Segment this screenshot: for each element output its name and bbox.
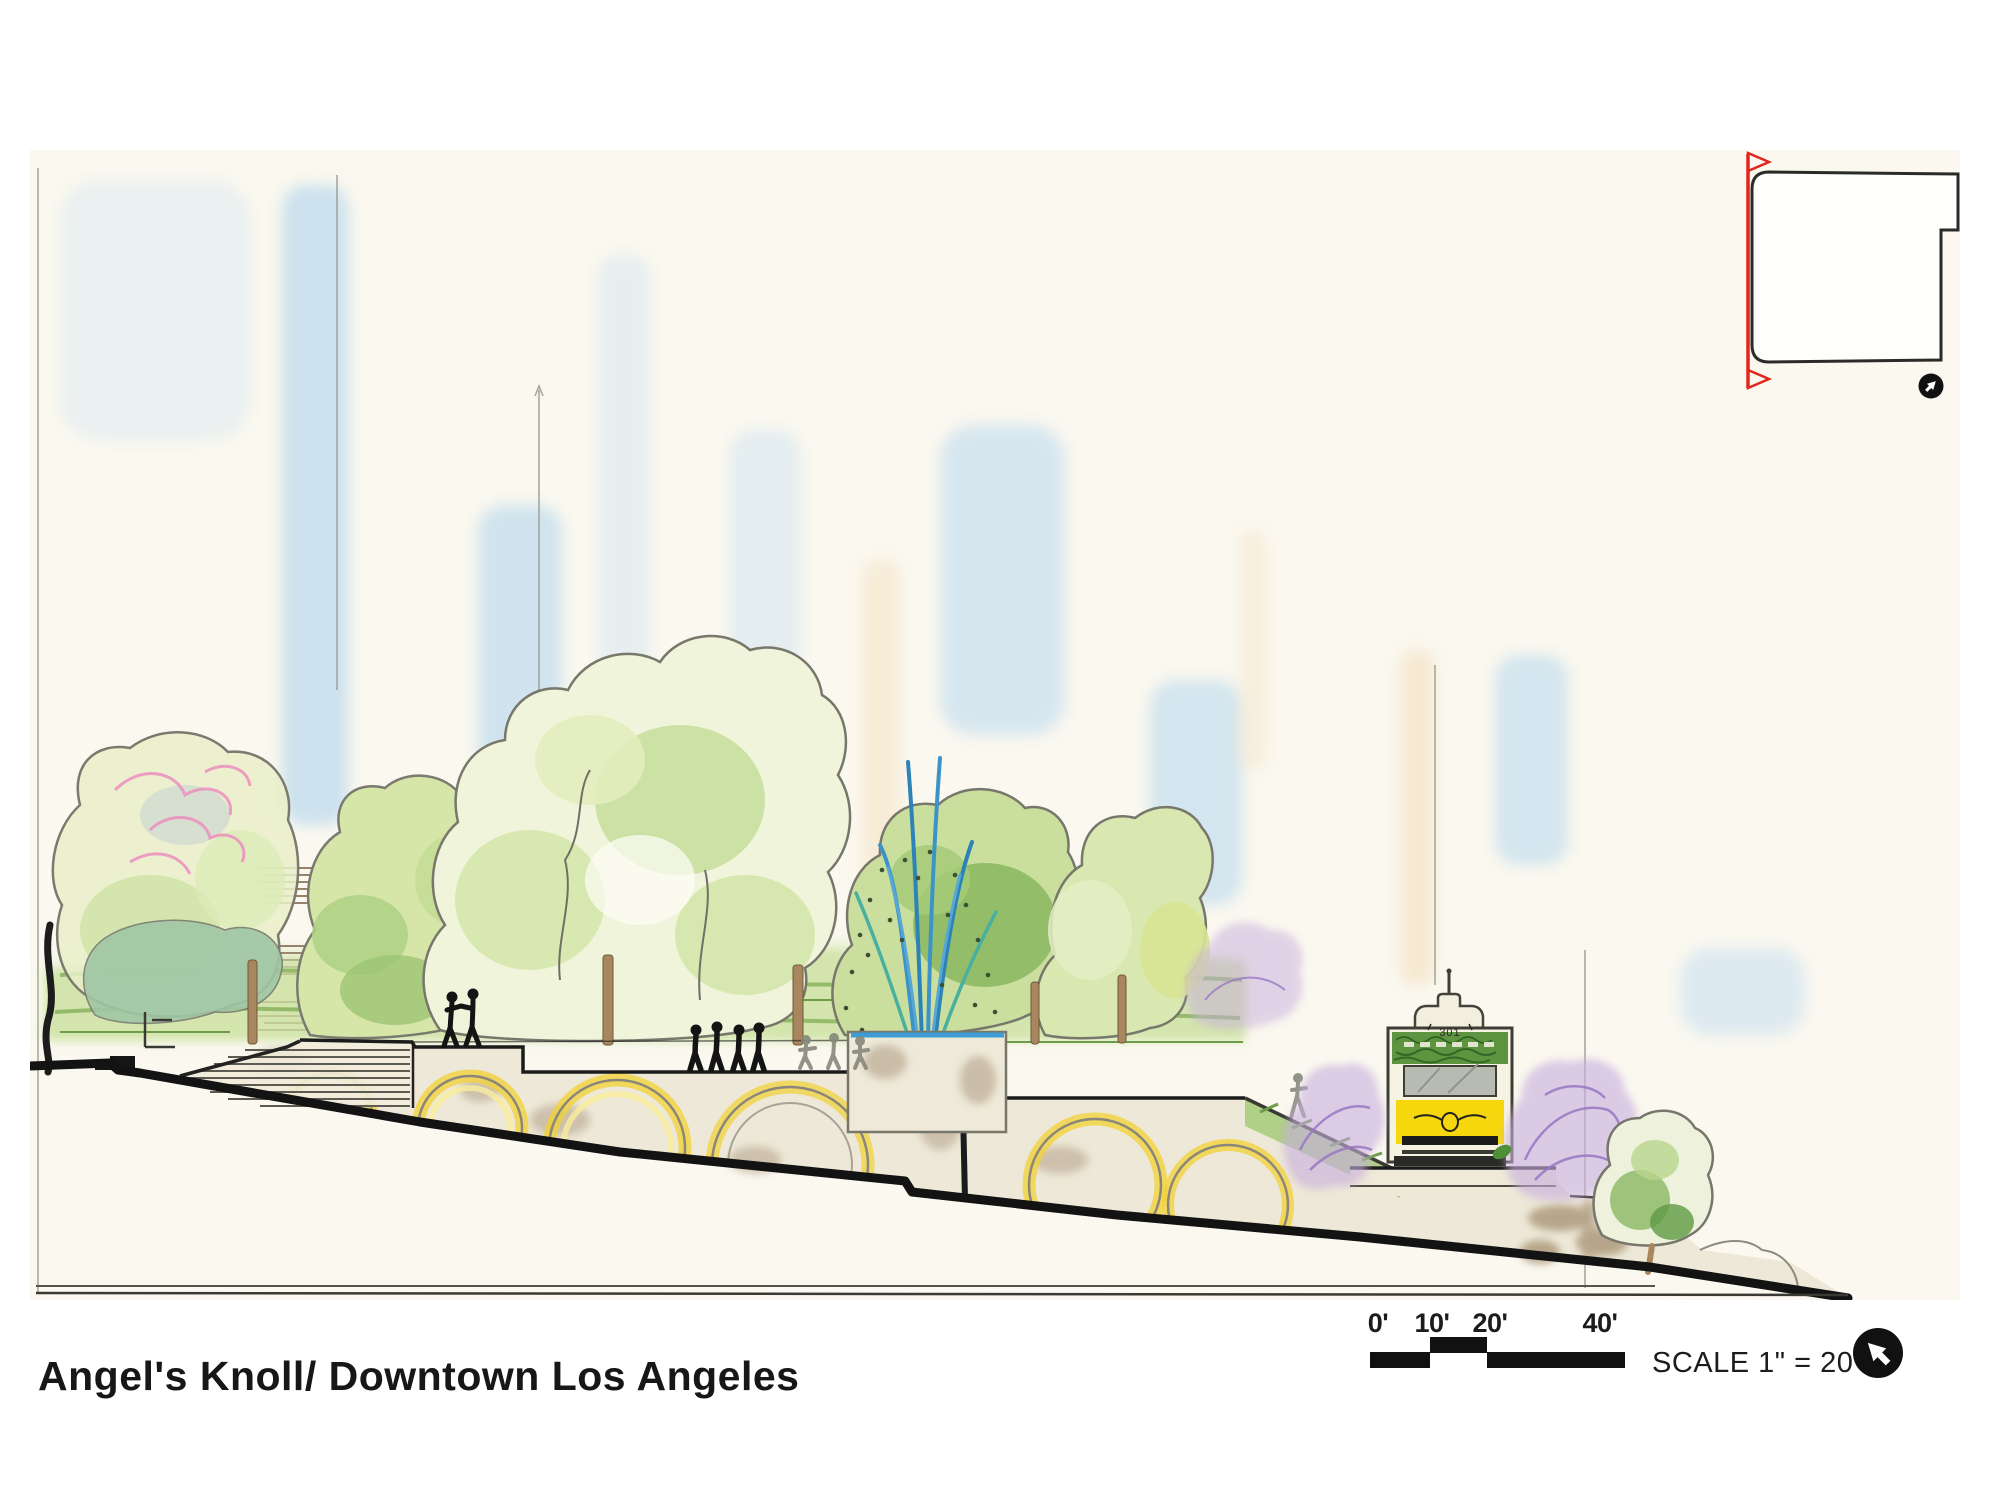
scale-segment bbox=[1430, 1337, 1487, 1353]
scale-label: 40' bbox=[1583, 1308, 1618, 1338]
scale-bar: 0' 10' 20' 40' SCALE 1" = 20'-0" bbox=[1368, 1308, 1903, 1379]
page: 301 bbox=[0, 0, 2000, 1500]
north-arrow-icon bbox=[1853, 1328, 1903, 1378]
scale-label: 20' bbox=[1473, 1308, 1508, 1338]
scale-label: 0' bbox=[1368, 1308, 1389, 1338]
key-plan-outline bbox=[1752, 172, 1958, 362]
scale-segment bbox=[1370, 1352, 1430, 1368]
section-drawing: 301 bbox=[0, 0, 2000, 1500]
page-title: Angel's Knoll/ Downtown Los Angeles bbox=[38, 1353, 799, 1399]
car-number: 301 bbox=[1439, 1027, 1460, 1039]
building-wash-blue bbox=[282, 185, 348, 825]
scale-label: 10' bbox=[1415, 1308, 1450, 1338]
car-base bbox=[1394, 1156, 1506, 1166]
scale-segment bbox=[1487, 1352, 1625, 1368]
bumper bbox=[1402, 1136, 1498, 1145]
north-arrow-icon bbox=[1919, 374, 1944, 399]
